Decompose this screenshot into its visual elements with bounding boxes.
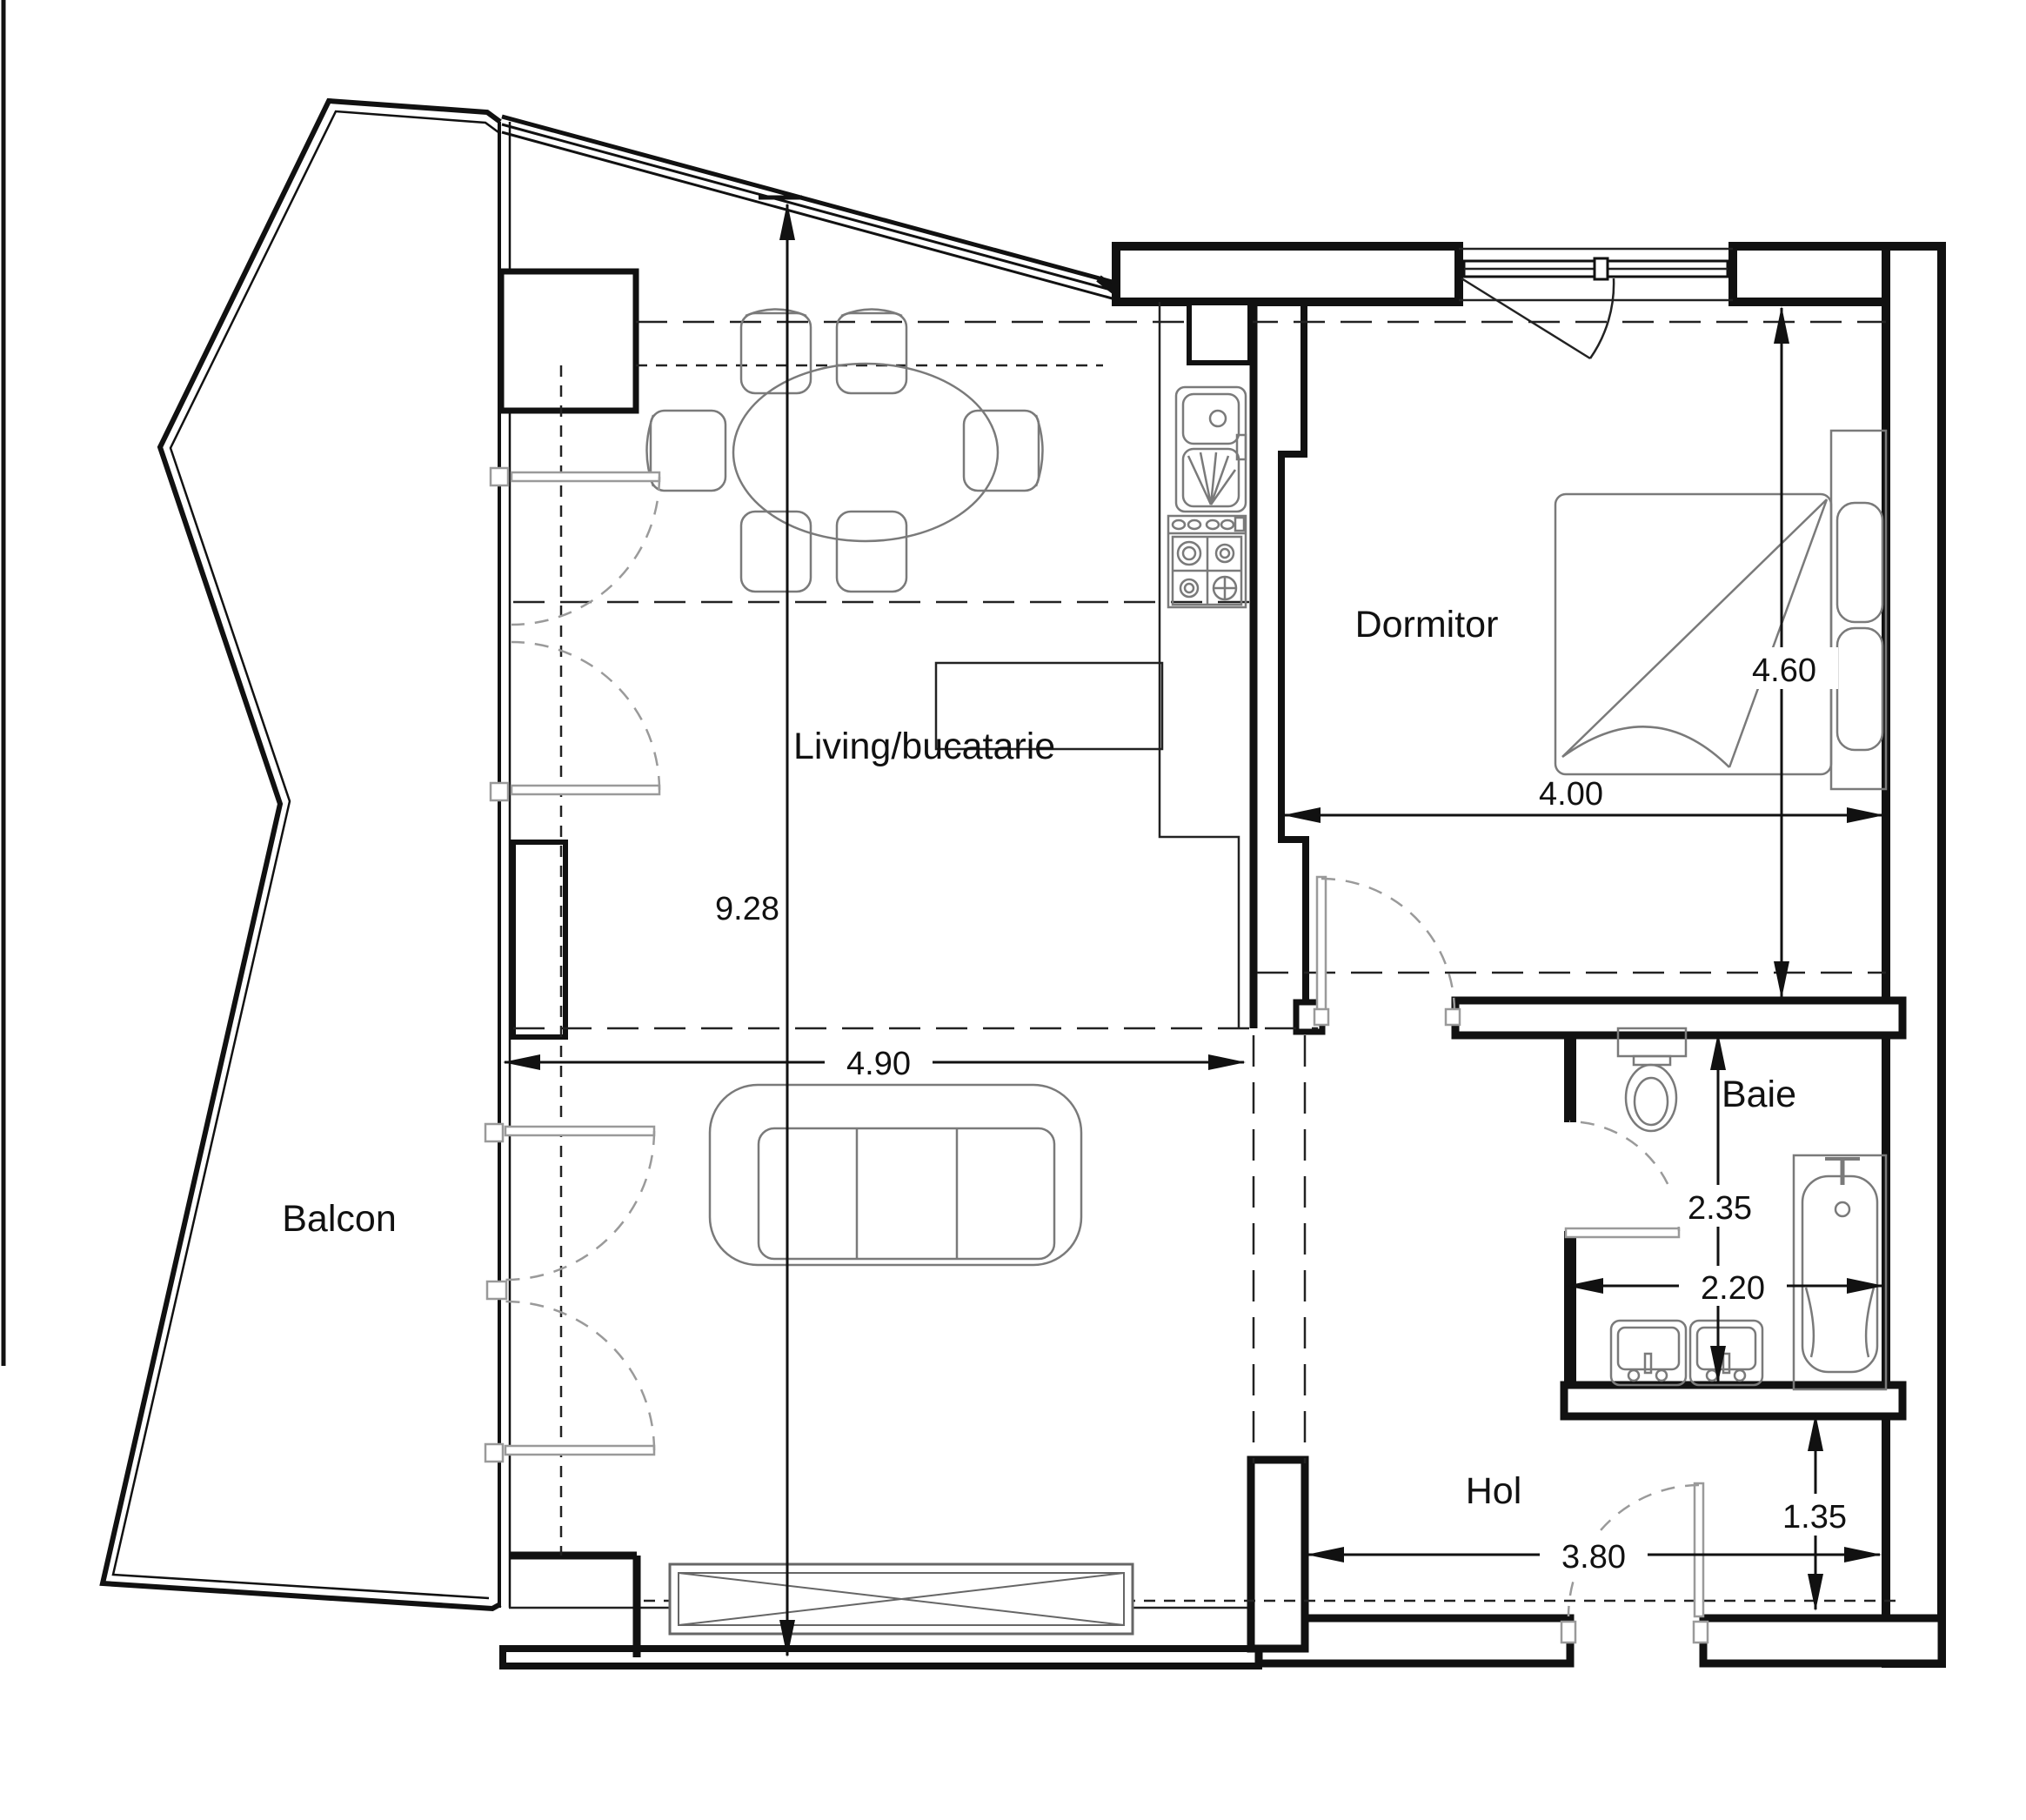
kitchen-counter-edge (1160, 302, 1239, 1028)
dim-value: 9.28 (715, 891, 779, 927)
kitchen-tall-unit (1189, 303, 1250, 363)
burner-3-inner (1185, 584, 1194, 592)
facade-pier (513, 842, 565, 1037)
tv-cabinet (670, 1564, 1133, 1634)
dim-value: 1.35 (1782, 1499, 1847, 1536)
room-label-hall: Hol (1466, 1470, 1522, 1512)
door-hinge-block (485, 1124, 503, 1141)
stove-knob-4 (1221, 520, 1234, 529)
balcony-door-swing (512, 642, 659, 790)
faucet-knob (1735, 1370, 1745, 1381)
faucet-knob (1628, 1370, 1639, 1381)
dining-chair (837, 313, 906, 393)
bedroom-door-leaf (1317, 877, 1326, 1014)
arrow-right-icon (1208, 1054, 1246, 1070)
balcony-door-leaf (512, 472, 659, 481)
door-stop-block (1446, 1009, 1460, 1025)
blanket-fold-line-2 (1729, 499, 1827, 767)
arrow-down-icon (1774, 961, 1789, 999)
bedroom-south-wall (1455, 1000, 1902, 1035)
faucet-knob (1656, 1370, 1667, 1381)
dim-value: 4.90 (846, 1046, 911, 1082)
arrow-down-icon (1808, 1574, 1823, 1611)
bathtub-deck (1794, 1155, 1886, 1389)
balcony-door-leaf (505, 1446, 654, 1455)
toilet-bowl-inner (1635, 1078, 1668, 1125)
burner-3-outer (1180, 579, 1198, 597)
balcony-door-swing (505, 1131, 654, 1280)
arrow-right-icon (1847, 807, 1884, 823)
living-wardrobe-box (501, 271, 636, 411)
balcony-outline (103, 101, 500, 1609)
sofa (710, 1085, 1081, 1265)
south-wall-living (503, 1649, 1259, 1666)
balcony-door-leaf (505, 1127, 654, 1135)
walls (503, 246, 1942, 1666)
casement-open-arc (1590, 278, 1614, 358)
dimension-living-width: 4.90 (503, 1040, 1246, 1082)
dim-value: 2.20 (1701, 1270, 1765, 1307)
balcony-door-leaf (512, 786, 659, 794)
stove-knob-1 (1173, 520, 1185, 529)
arrow-left-icon (503, 1054, 540, 1070)
dining-chair (964, 411, 1039, 491)
north-wall-left-segment (1116, 246, 1459, 302)
kitchen-stove (1168, 516, 1246, 607)
arrow-right-icon (1844, 1547, 1882, 1562)
dining-chair (741, 313, 811, 393)
sink-drain (1210, 411, 1226, 426)
sloped-glazing-line-2 (502, 124, 1117, 291)
hall-west-pier (1251, 1460, 1305, 1649)
balcony-outer-rail (103, 101, 500, 1609)
dim-value: 2.35 (1688, 1190, 1752, 1227)
washbasin-pair (1611, 1321, 1762, 1385)
door-hinge-block (487, 1281, 506, 1299)
sofa-seat (759, 1128, 1054, 1259)
dining-chair (651, 411, 725, 491)
door-hinge-block (491, 783, 508, 800)
dimensions: 9.28 4.90 4.60 4.00 (503, 197, 1884, 1657)
casement-open-line-1 (1461, 278, 1590, 358)
east-wall (1886, 246, 1942, 1663)
kitchen-sink (1176, 387, 1246, 512)
stove-knob-3 (1207, 520, 1219, 529)
room-label-balcony: Balcon (282, 1198, 396, 1240)
bathroom-door-leaf (1566, 1228, 1679, 1237)
doors (485, 468, 1708, 1643)
dining-table (733, 364, 998, 541)
burner-2-outer (1216, 545, 1234, 562)
washbasin-bowl (1618, 1328, 1679, 1369)
toilet-bowl-outer (1626, 1065, 1676, 1131)
dining-set (647, 310, 1043, 592)
bed (1555, 431, 1886, 789)
door-jamb-block (1694, 1622, 1708, 1643)
door-stop-block (1314, 1009, 1328, 1025)
balcony-inner-rail (113, 111, 498, 1598)
bed-headboard (1831, 431, 1886, 789)
pillow (1837, 628, 1882, 750)
washbasin-bowl (1697, 1328, 1755, 1369)
arrow-right-icon (1847, 1278, 1884, 1294)
dimension-hall-width: 3.80 (1307, 1535, 1882, 1576)
dim-value: 4.00 (1539, 776, 1603, 813)
bathroom-door-swing (1569, 1121, 1679, 1231)
arrow-up-icon (1774, 306, 1789, 344)
bedroom-window (1459, 249, 1733, 358)
bedroom-west-wall (1281, 302, 1306, 1007)
window-mullion (1595, 258, 1608, 279)
sloped-glazing-line-1 (502, 117, 1119, 284)
dining-chair (741, 512, 811, 592)
dimension-bedroom-width: 4.00 (1283, 776, 1884, 823)
pillow (1837, 503, 1882, 622)
dim-value: 4.60 (1752, 652, 1816, 689)
bathtub (1794, 1155, 1886, 1389)
south-wall-hall-right (1703, 1618, 1942, 1663)
floor-plan-page: 9.28 4.90 4.60 4.00 (0, 0, 2026, 1820)
burner-2-inner (1220, 549, 1229, 558)
door-jamb-block (1561, 1622, 1575, 1643)
door-hinge-block (485, 1444, 503, 1462)
arrow-left-icon (1283, 807, 1321, 823)
balcony-door-swing (505, 1301, 654, 1450)
room-label-bedroom: Dormitor (1355, 604, 1499, 646)
room-label-living: Living/bucatarie (793, 726, 1055, 767)
blanket-fold-line-1 (1562, 499, 1827, 757)
burner-1-inner (1183, 547, 1195, 559)
dimension-bath-width: 2.20 (1566, 1266, 1884, 1307)
arrow-left-icon (1307, 1547, 1344, 1562)
bathtub-seat-lines (1806, 1288, 1874, 1357)
sofa-outline (710, 1085, 1081, 1265)
dining-chair (837, 512, 906, 592)
dimension-plan-height: 9.28 (715, 197, 802, 1657)
door-hinge-block (491, 468, 508, 485)
toilet (1618, 1028, 1686, 1131)
dimension-bedroom-height: 4.60 (1730, 306, 1838, 999)
toilet-connector (1634, 1056, 1670, 1065)
room-label-bathroom: Baie (1722, 1074, 1796, 1115)
stove-knob-2 (1188, 520, 1200, 529)
burner-1-outer (1178, 542, 1200, 565)
bedroom-door-swing (1321, 879, 1454, 1012)
drainboard-grooves (1188, 452, 1235, 505)
floor-plan-drawing: 9.28 4.90 4.60 4.00 (0, 0, 2026, 1820)
dimension-hall-depth: 1.35 (1761, 1414, 1869, 1611)
bathtub-drain (1835, 1202, 1849, 1216)
faucet-knob (1707, 1370, 1717, 1381)
stove-igniter (1235, 518, 1244, 531)
entrance-door-leaf (1695, 1483, 1703, 1616)
dim-value: 3.80 (1561, 1539, 1626, 1576)
